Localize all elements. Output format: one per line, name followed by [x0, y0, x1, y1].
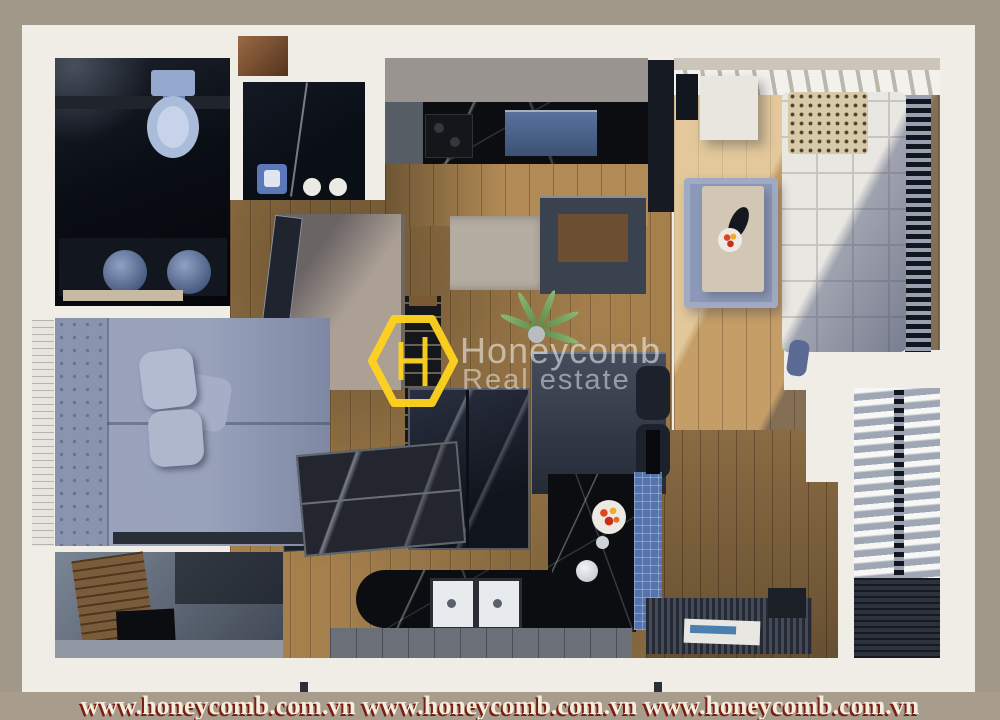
ladder-shelf [905, 90, 931, 352]
bottom-counter [356, 570, 552, 628]
footer-urls: www.honeycomb.com.vn www.honeycomb.com.v… [0, 692, 1000, 720]
bed-headboard [55, 318, 109, 546]
fruit-bowl [718, 228, 742, 252]
balcony [854, 388, 940, 658]
kitchen-sink [505, 110, 597, 156]
side-shelf [768, 588, 806, 618]
cooktop [425, 114, 473, 158]
bed [55, 318, 330, 546]
books-brown [409, 296, 437, 306]
ac-unit [676, 74, 698, 120]
kitchen-island [548, 474, 636, 632]
watermark: Honeycomb Real estate [360, 306, 680, 416]
bed-pillow-1 [138, 347, 199, 411]
utility-dark-corner [175, 552, 283, 604]
balcony-slat-floor [854, 578, 940, 658]
honeycomb-logo-hexagon-icon [368, 312, 458, 410]
double-sink-right [476, 578, 522, 630]
burner-2 [450, 137, 460, 147]
living-top-band [674, 58, 940, 70]
peninsula-counter [540, 196, 646, 294]
faucet-right [493, 599, 502, 608]
utility-floor [55, 640, 283, 658]
magazine [684, 619, 761, 646]
quilted-sofa [782, 92, 906, 352]
dining-table [296, 441, 466, 557]
tile-floor-strip [330, 628, 632, 658]
entry-cabinet-top [450, 216, 550, 290]
watermark-tagline: Real estate [462, 364, 631, 397]
fridge-cabinet [648, 60, 674, 212]
table-frame-line [302, 489, 460, 505]
towel-roll-1 [303, 178, 321, 196]
peninsula-shelf-wood [558, 214, 628, 262]
kitchen-wall-band [385, 58, 648, 102]
basin-sink-right [167, 250, 211, 294]
cup [596, 536, 609, 549]
honeycomb-throw [788, 92, 868, 154]
fruit-plate [592, 500, 626, 534]
burner-1 [434, 123, 444, 133]
double-sink-left [430, 578, 476, 630]
kettle [576, 560, 598, 582]
divider-wall-v [806, 350, 854, 482]
curtain-rod [894, 390, 904, 576]
bed-foot-bench [113, 532, 329, 544]
utility-room [55, 552, 283, 658]
bedroom-window-blind [32, 320, 54, 546]
toilet-tank [151, 70, 195, 96]
kitchen-cabinet-gray [385, 102, 423, 164]
toilet-2 [257, 164, 287, 194]
towel-roll-2 [329, 178, 347, 196]
toilet-2-lid [264, 170, 280, 187]
white-cabinet [700, 76, 758, 140]
vanity-ledge [63, 290, 183, 301]
bed-pillow-2 [147, 408, 205, 468]
toilet-seat [157, 106, 189, 148]
faucet-left [447, 599, 456, 608]
tv-edge [646, 430, 660, 474]
footer-url-bar: www.honeycomb.com.vn www.honeycomb.com.v… [0, 692, 1000, 720]
basin-sink-left [103, 250, 147, 294]
master-bathroom [55, 58, 230, 306]
magazine-stripe [690, 625, 736, 635]
shower-beam [55, 96, 230, 109]
logo-h-icon [401, 337, 425, 386]
storage-niche [238, 36, 288, 76]
second-bathroom [243, 82, 365, 200]
toilet-bowl [147, 96, 199, 158]
floorplan-render: Honeycomb Real estate www.honeycomb.com.… [0, 0, 1000, 720]
kitchen-counter [385, 102, 648, 164]
